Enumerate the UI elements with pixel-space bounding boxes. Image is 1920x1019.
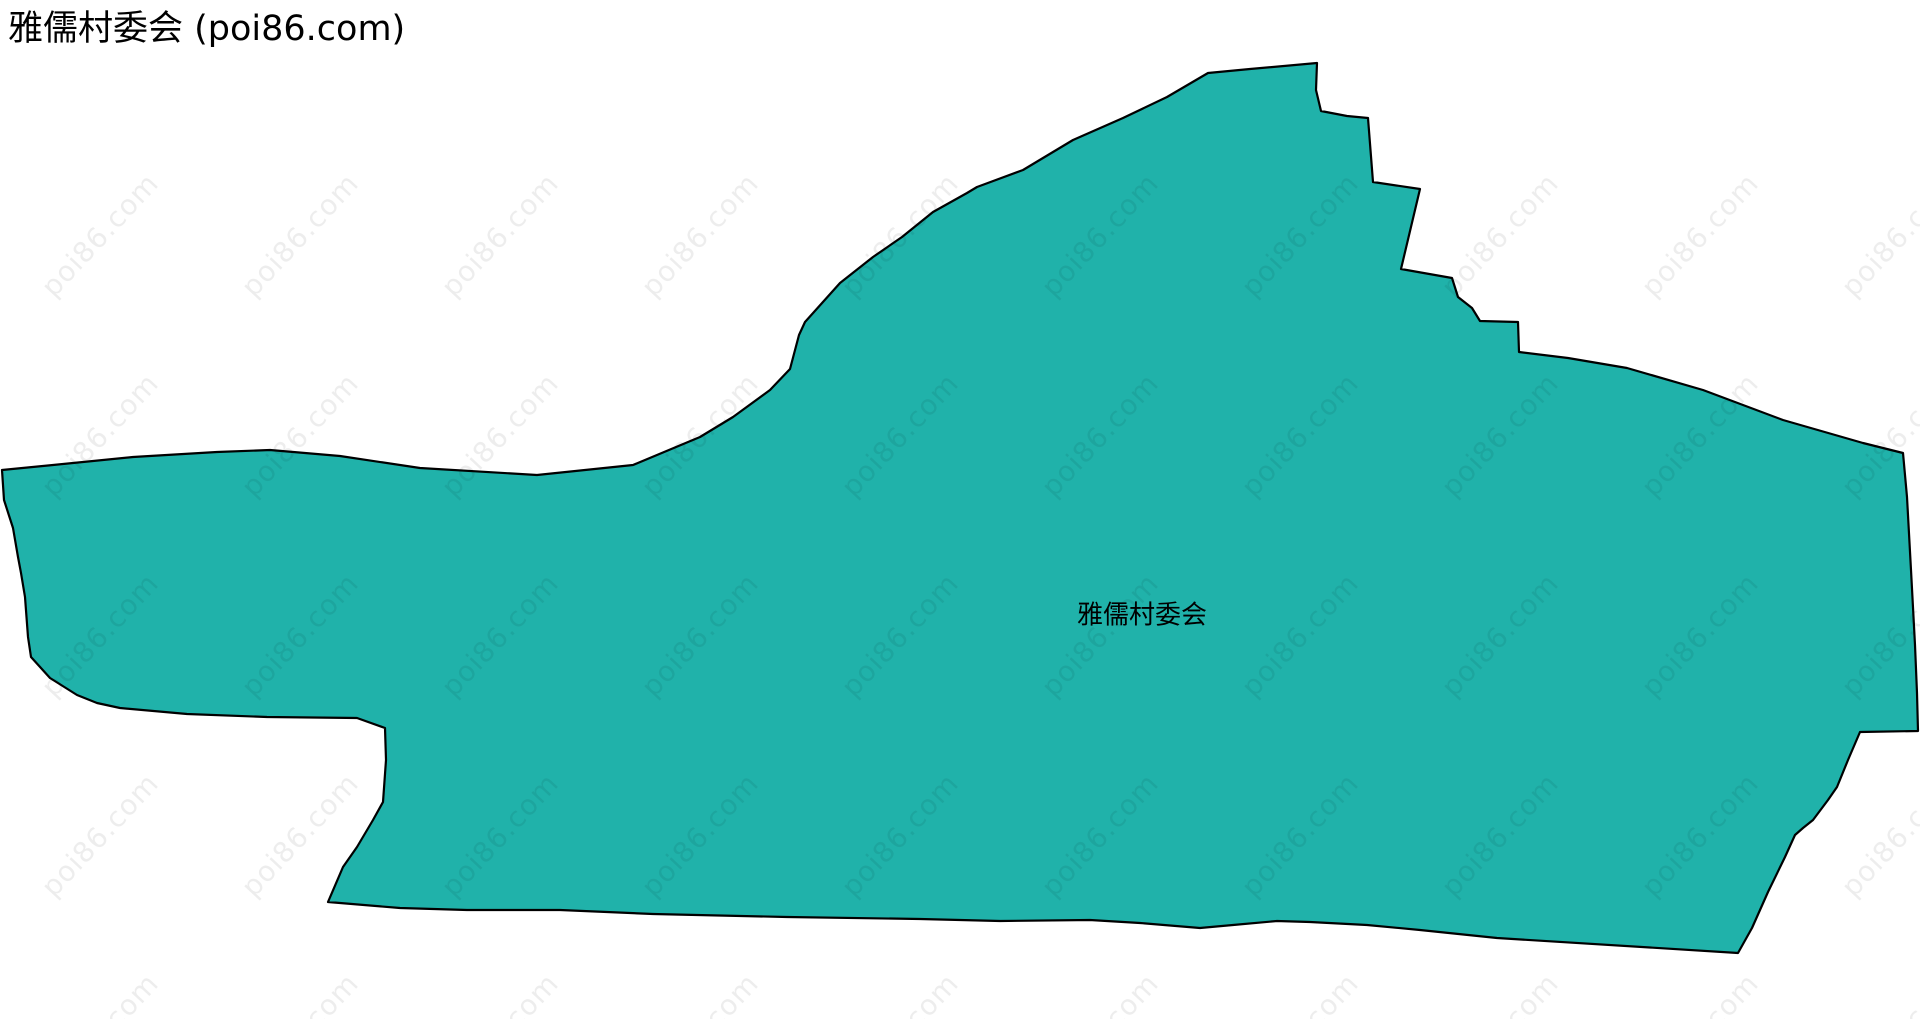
region-label: 雅儒村委会 [1077,595,1207,632]
map-canvas: poi86.compoi86.compoi86.compoi86.compoi8… [0,0,1920,1019]
region-map-svg [0,0,1920,1019]
region-polygon [2,63,1918,953]
page-title: 雅儒村委会 (poi86.com) [8,8,405,50]
